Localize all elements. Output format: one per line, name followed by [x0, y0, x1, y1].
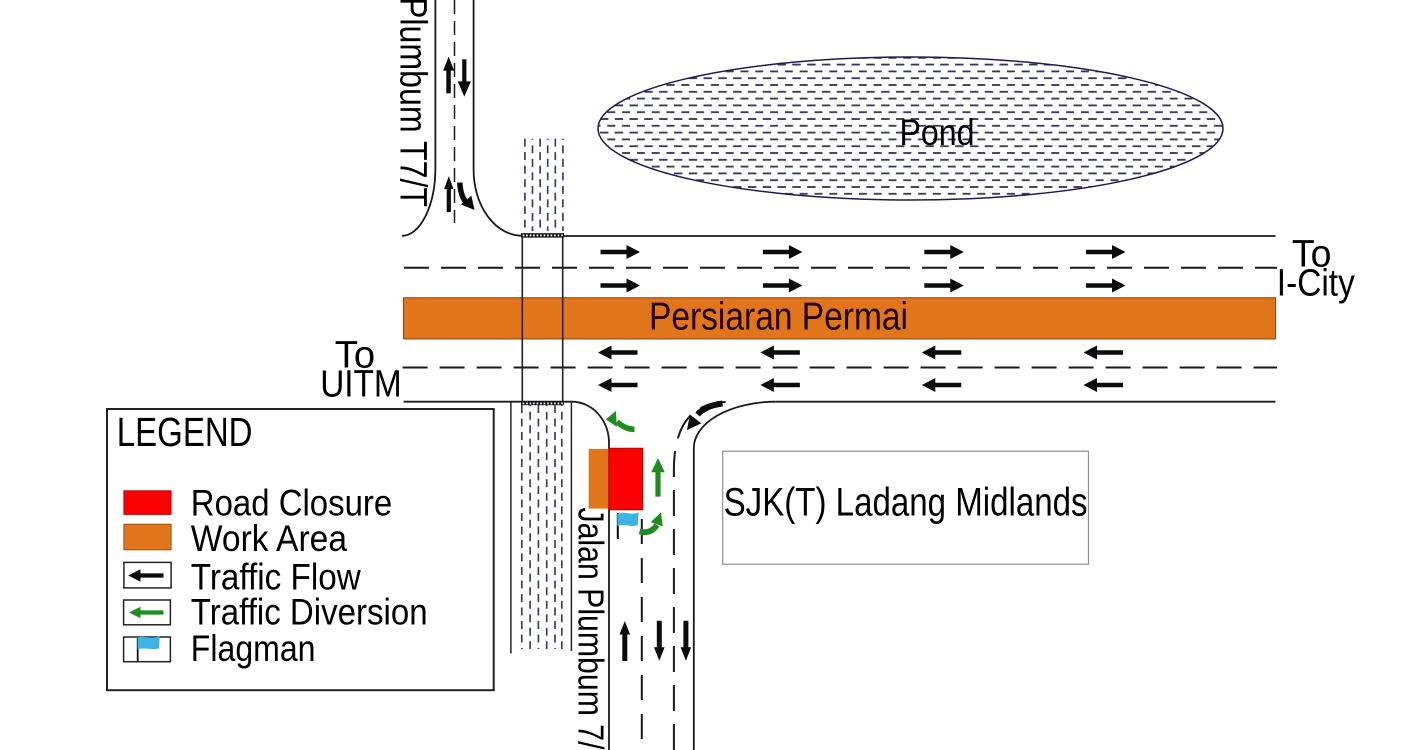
- svg-text:UITM: UITM: [320, 364, 402, 406]
- svg-text:SJK(T) Ladang Midlands: SJK(T) Ladang Midlands: [724, 481, 1088, 525]
- svg-text:Flagman: Flagman: [191, 628, 316, 669]
- svg-text:Plumbum T7/T: Plumbum T7/T: [392, 0, 434, 207]
- svg-text:LEGEND: LEGEND: [117, 409, 253, 455]
- svg-text:Traffic Diversion: Traffic Diversion: [191, 592, 428, 633]
- svg-text:Jalan Plumbum 7/: Jalan Plumbum 7/: [571, 508, 612, 750]
- svg-text:I-City: I-City: [1277, 263, 1355, 305]
- svg-text:Work Area: Work Area: [191, 518, 348, 559]
- svg-text:Persiaran Permai: Persiaran Permai: [649, 296, 908, 339]
- svg-text:Pond: Pond: [900, 111, 975, 153]
